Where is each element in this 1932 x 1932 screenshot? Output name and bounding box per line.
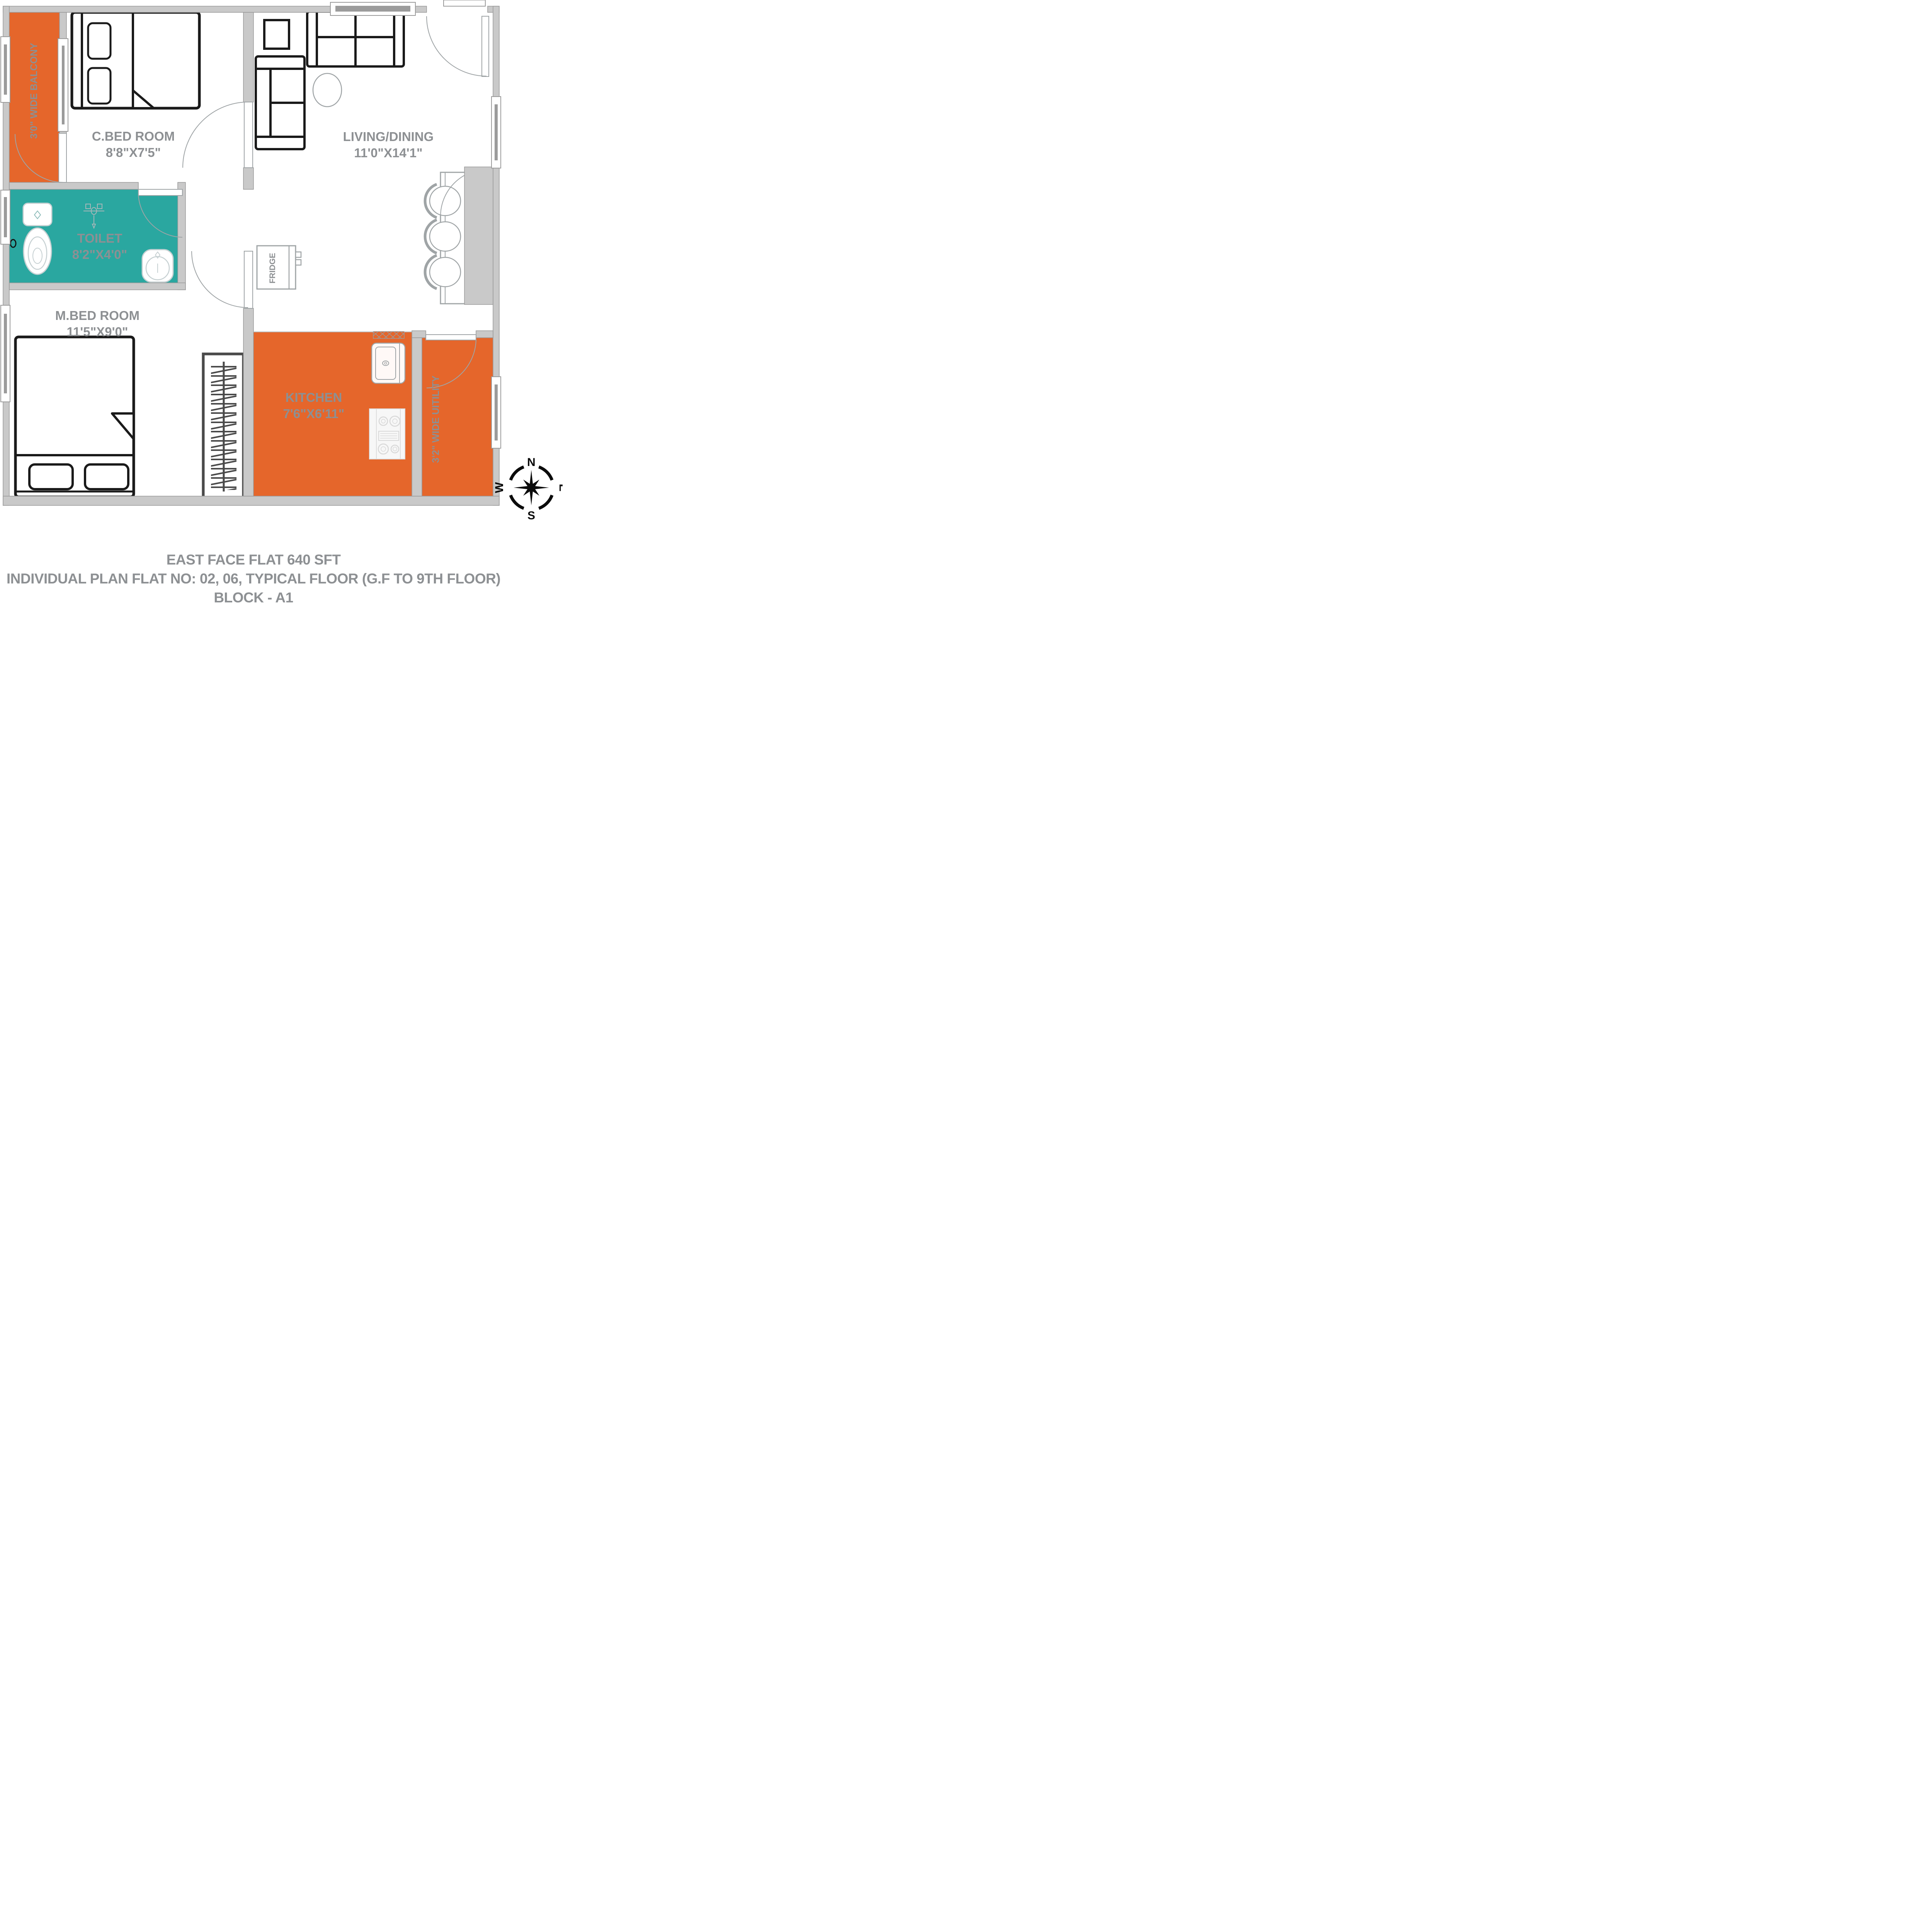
living-room-dims: 11'0"X14'1" xyxy=(354,146,422,160)
kitchen-room-label: KITCHEN xyxy=(286,390,342,405)
wall-mbed-kitchen xyxy=(243,308,253,496)
wall-bottom xyxy=(3,496,499,505)
compass-w: W xyxy=(493,482,506,493)
wardrobe xyxy=(203,354,243,498)
living-sofa-vertical xyxy=(256,56,304,149)
wall-kitchen-utility xyxy=(412,338,422,496)
duct-shaft xyxy=(464,167,493,304)
kitchen-platform-hatch xyxy=(373,332,404,338)
window-balcony-partition xyxy=(58,39,68,131)
wall-toilet-top xyxy=(9,182,138,189)
compass-s: S xyxy=(527,509,535,522)
mbed-pillow xyxy=(29,464,73,489)
mbed-room-label: M.BED ROOM xyxy=(55,308,139,323)
kitchen-sink xyxy=(372,343,405,383)
toilet-wc xyxy=(23,203,52,274)
toilet-basin xyxy=(142,250,173,282)
living-sofa-horizontal xyxy=(307,12,404,66)
compass-e: E xyxy=(557,484,563,492)
compass-ring-nw xyxy=(510,467,524,480)
wall-toilet-bottom xyxy=(9,283,185,290)
cbed-room-dims: 8'8"X7'5" xyxy=(106,145,161,160)
window-top-small xyxy=(444,0,485,6)
wall-utility-top-left xyxy=(412,331,426,338)
wall-utility-top-right xyxy=(476,331,493,338)
floor-plan-page: C.BED ROOM 8'8"X7'5" LIVING/DINING 11'0"… xyxy=(0,0,563,614)
balcony-label: 3'0" WIDE BALCONY xyxy=(29,43,39,139)
mbed-room-dims: 11'5"X9'0" xyxy=(67,325,128,339)
living-side-table xyxy=(264,20,289,49)
counter-chairs xyxy=(425,184,461,289)
compass-ring-se xyxy=(539,495,552,509)
kitchen-room-dims: 7'6"X6'11" xyxy=(283,406,345,421)
toilet-room-dims: 8'2"X4'0" xyxy=(72,247,127,262)
plan-caption: EAST FACE FLAT 640 SFT INDIVIDUAL PLAN F… xyxy=(0,550,507,607)
window-utility-right xyxy=(492,377,501,448)
utility-label: 3'2" WIDE UITILITY xyxy=(430,376,441,463)
compass-ring-sw xyxy=(510,495,524,509)
window-living-right xyxy=(492,97,501,168)
living-room-label: LIVING/DINING xyxy=(343,129,434,144)
caption-line-3: BLOCK - A1 xyxy=(0,588,507,607)
window-mbed-left xyxy=(1,305,10,402)
kitchen-stove xyxy=(369,409,405,459)
wall-cbed-living-lower xyxy=(243,168,253,189)
wall-toilet-right xyxy=(178,182,185,290)
mbed-bed xyxy=(15,337,134,497)
compass-star xyxy=(514,470,549,505)
wall-cbed-living-upper xyxy=(243,12,253,102)
caption-line-1: EAST FACE FLAT 640 SFT xyxy=(0,550,507,569)
cbed-pillow xyxy=(88,68,111,104)
living-coffee-table xyxy=(313,73,342,107)
caption-line-2: INDIVIDUAL PLAN FLAT NO: 02, 06, TYPICAL… xyxy=(0,569,507,588)
floor-plan-drawing: C.BED ROOM 8'8"X7'5" LIVING/DINING 11'0"… xyxy=(0,0,563,541)
mbed-pillow xyxy=(85,464,128,489)
fridge xyxy=(257,246,301,289)
cbed-room-label: C.BED ROOM xyxy=(92,129,175,143)
window-toilet-left xyxy=(1,190,10,244)
window-living-top xyxy=(330,2,415,15)
toilet-room-label: TOILET xyxy=(77,231,122,245)
compass-n: N xyxy=(527,456,536,469)
compass-rose: N S E W xyxy=(493,456,563,522)
cbed-pillow xyxy=(88,23,111,59)
cbed-bed xyxy=(72,12,199,108)
window-balcony-left xyxy=(1,37,10,102)
fridge-label: FRIDGE xyxy=(268,253,277,283)
compass-ring-ne xyxy=(539,467,552,480)
